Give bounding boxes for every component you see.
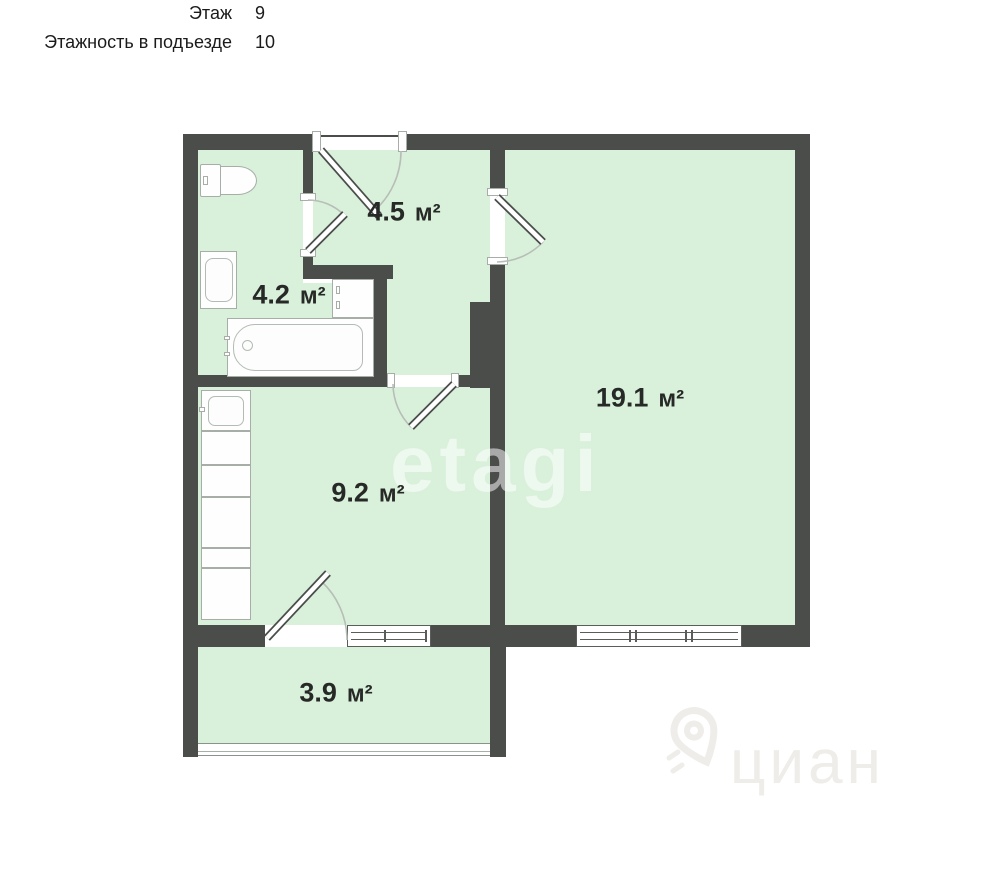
balcony-area-unit: м² bbox=[347, 681, 373, 709]
sink-basin-icon bbox=[205, 258, 233, 302]
washing-machine-hinge-icon-2 bbox=[336, 301, 340, 309]
living-jamb-bottom bbox=[487, 257, 508, 265]
living-window-mullion-2 bbox=[635, 630, 637, 642]
kitchen-sink-basin-icon bbox=[208, 396, 244, 426]
room-label-balcony: 3.9 м² bbox=[299, 678, 372, 709]
kitchen-counter-unit bbox=[201, 431, 251, 465]
wall-balcony-right bbox=[490, 647, 506, 757]
floorplan-page: Этаж 9 Этажность в подъезде 10 bbox=[0, 0, 988, 894]
toilet-icon bbox=[219, 166, 257, 195]
toilet-flush-button-icon bbox=[203, 176, 208, 185]
floors-total-value: 10 bbox=[255, 32, 275, 54]
bathroom-jamb-top bbox=[300, 193, 316, 201]
wall-top-left bbox=[183, 134, 317, 150]
kitchen-jamb-left bbox=[387, 373, 395, 388]
room-label-bathroom: 4.2 м² bbox=[252, 280, 325, 311]
kitchen-window bbox=[347, 625, 431, 647]
entrance-jamb-right bbox=[398, 131, 407, 152]
cian-pin-icon bbox=[664, 700, 730, 788]
bathtub-tap-icon-2 bbox=[224, 352, 230, 356]
floors-total-label: Этажность в подъезде bbox=[0, 32, 232, 54]
bathroom-door-opening bbox=[303, 200, 313, 250]
floor-row: Этаж 9 bbox=[0, 3, 265, 25]
kitchen-window-glass bbox=[351, 632, 427, 640]
washing-machine-icon bbox=[332, 279, 374, 318]
wall-left-exterior bbox=[183, 134, 198, 757]
living-window-mullion-4 bbox=[691, 630, 693, 642]
hallway-area-value: 4.5 bbox=[367, 197, 405, 228]
balcony-glazing bbox=[198, 743, 490, 756]
floor-label: Этаж bbox=[0, 3, 232, 25]
wall-kitchen-bottom-left bbox=[183, 625, 265, 647]
hallway-area-unit: м² bbox=[415, 200, 441, 228]
bathroom-area-unit: м² bbox=[300, 283, 326, 311]
balcony-area-value: 3.9 bbox=[299, 678, 337, 709]
wall-living-left-b bbox=[490, 258, 505, 305]
bathtub-drain-icon bbox=[242, 340, 253, 351]
living-door-opening bbox=[490, 195, 505, 258]
room-label-living-room: 19.1 м² bbox=[596, 383, 684, 414]
kitchen-counter-unit-2 bbox=[201, 465, 251, 497]
room-label-hallway: 4.5 м² bbox=[367, 197, 440, 228]
kitchen-counter-unit-4 bbox=[201, 548, 251, 568]
living-window-mullion bbox=[629, 630, 631, 642]
entrance-jamb-left bbox=[312, 131, 321, 152]
living-window-mullion-3 bbox=[685, 630, 687, 642]
kitchen-counter-unit-3 bbox=[201, 497, 251, 548]
bathroom-jamb-bottom bbox=[300, 249, 316, 257]
living-window bbox=[576, 625, 742, 647]
wall-bathroom-lower-right bbox=[374, 279, 387, 377]
wall-bathroom-step bbox=[303, 265, 393, 279]
watermark-cian: циан bbox=[730, 732, 885, 794]
room-label-kitchen: 9.2 м² bbox=[331, 478, 404, 509]
kitchen-tap-icon bbox=[199, 407, 205, 412]
bathroom-area-value: 4.2 bbox=[252, 280, 290, 311]
kitchen-counter-unit-5 bbox=[201, 568, 251, 620]
floor-value: 9 bbox=[255, 3, 265, 25]
bathtub-tap-icon bbox=[224, 336, 230, 340]
kitchen-window-mullion-2 bbox=[425, 630, 427, 642]
kitchen-jamb-right bbox=[451, 373, 459, 388]
wall-living-left-thick bbox=[470, 302, 505, 388]
living-room-area-unit: м² bbox=[658, 386, 684, 414]
entrance-threshold-line bbox=[317, 135, 403, 137]
wall-bathroom-right-upper bbox=[303, 150, 313, 193]
wall-right-exterior bbox=[795, 134, 810, 647]
living-jamb-top bbox=[487, 188, 508, 196]
living-room-area-value: 19.1 bbox=[596, 383, 649, 414]
wall-kitchen-bottom-right bbox=[430, 625, 505, 647]
kitchen-area-unit: м² bbox=[379, 481, 405, 509]
balcony-glazing-line bbox=[198, 751, 490, 753]
floors-total-row: Этажность в подъезде 10 bbox=[0, 32, 275, 54]
living-window-glass bbox=[580, 632, 738, 640]
kitchen-door-opening bbox=[393, 375, 453, 387]
wall-top-right bbox=[403, 134, 810, 150]
balcony-door-opening bbox=[265, 625, 347, 647]
washing-machine-hinge-icon bbox=[336, 286, 340, 294]
kitchen-area-value: 9.2 bbox=[331, 478, 369, 509]
watermark-etagi: etagi bbox=[390, 424, 602, 504]
kitchen-window-mullion bbox=[384, 630, 386, 642]
